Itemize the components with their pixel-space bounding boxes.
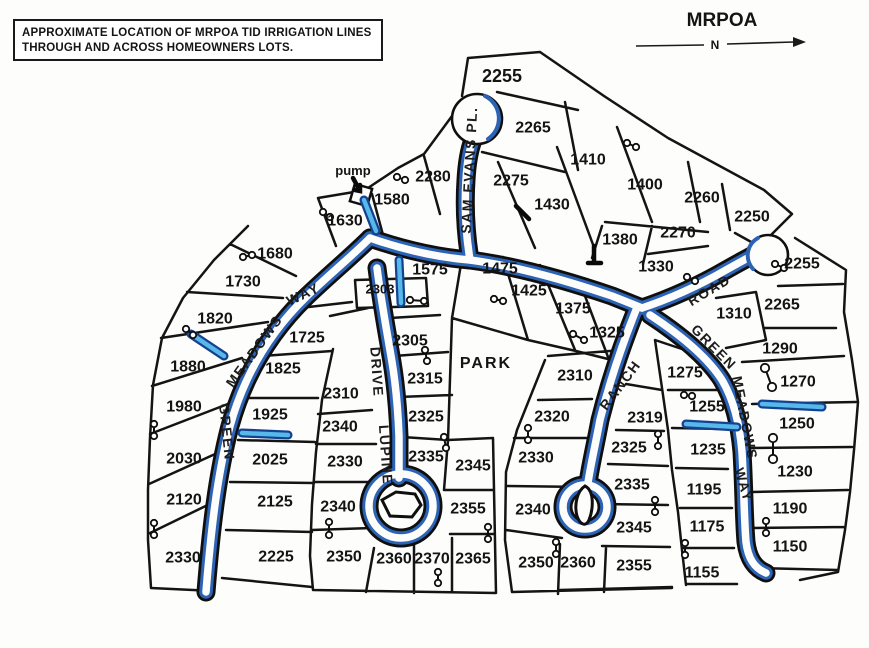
lot-label-2320: 2320: [534, 409, 570, 426]
lot-label-2330: 2330: [165, 550, 201, 567]
valve-symbol: [633, 144, 639, 150]
lot-label-1310: 1310: [716, 306, 752, 323]
lot-label-2319: 2319: [627, 410, 663, 427]
street-label: DRIVE: [367, 346, 386, 397]
valve-symbol: [772, 261, 778, 267]
lot-label-1410: 1410: [570, 152, 606, 169]
lot-label-1375: 1375: [555, 301, 591, 318]
valve-symbol: [500, 298, 506, 304]
lot-label-1725: 1725: [289, 330, 325, 347]
lot-label-1825: 1825: [265, 361, 301, 378]
lot-label-2255: 2255: [784, 256, 820, 273]
valve-symbol: [763, 518, 769, 524]
valve-symbol: [553, 539, 559, 545]
pump-arrow: [353, 178, 360, 191]
valve-symbol: [761, 364, 769, 372]
valve-symbol: [655, 443, 661, 449]
valve-symbol: [769, 434, 777, 442]
lot-label-2365: 2365: [455, 551, 491, 568]
lot-label-1195: 1195: [687, 482, 722, 499]
lot-label-2325: 2325: [408, 409, 444, 426]
lot-label-2025: 2025: [252, 452, 288, 469]
lot-label-1430: 1430: [534, 197, 570, 214]
lot-label-2340: 2340: [322, 419, 358, 436]
valve-symbol: [151, 421, 157, 427]
lot-label-2330: 2330: [327, 454, 363, 471]
valve-symbol: [240, 254, 246, 260]
lot-label-2315: 2315: [407, 371, 443, 388]
lot-label-1275: 1275: [667, 365, 703, 382]
lot-label-1175: 1175: [690, 519, 725, 536]
lot-label-1630: 1630: [327, 213, 363, 230]
lot-label-2270: 2270: [660, 225, 696, 242]
lot-label-1580: 1580: [374, 192, 410, 209]
valve-symbol: [769, 455, 777, 463]
lot-label-1190: 1190: [773, 501, 808, 518]
lot-label-2310: 2310: [557, 368, 593, 385]
lot-label-2350: 2350: [518, 555, 554, 572]
valve-symbol: [768, 383, 776, 391]
lot-label-2335: 2335: [408, 449, 444, 466]
north-arrow: N: [636, 37, 806, 52]
valve-symbol: [652, 497, 658, 503]
valve-symbol: [421, 298, 427, 304]
lot-label-2250: 2250: [734, 209, 770, 226]
lot-label-1980: 1980: [166, 399, 202, 416]
lot-label-2120: 2120: [166, 492, 202, 509]
mrpoa-irrigation-map-page: 2280158016302255226522751430141014002260…: [0, 0, 869, 648]
valve-symbol: [485, 524, 491, 530]
valve-symbol: [435, 580, 441, 586]
ranch-loop-island: [576, 486, 592, 524]
valve-symbol: [485, 536, 491, 542]
north-arrow-head: [793, 37, 806, 47]
lot-label-2303: 2303: [366, 282, 395, 297]
lot-label-1475: 1475: [482, 261, 518, 278]
valve-symbol: [394, 174, 400, 180]
note-box: APPROXIMATE LOCATION OF MRPOA TID IRRIGA…: [14, 20, 382, 60]
lot-label-2305: 2305: [392, 333, 428, 350]
lot-label-2350: 2350: [326, 549, 362, 566]
valve-symbol: [681, 392, 687, 398]
valve-symbol: [320, 209, 326, 215]
lot-label-2275: 2275: [493, 173, 529, 190]
lot-label-2370: 2370: [414, 551, 450, 568]
valve-symbol: [525, 425, 531, 431]
valve-symbol: [682, 552, 688, 558]
lot-label-2265: 2265: [764, 297, 800, 314]
valve-symbol: [190, 332, 196, 338]
valve-symbol: [151, 520, 157, 526]
valve-symbol: [692, 278, 698, 284]
lot-label-2340: 2340: [320, 499, 356, 516]
lot-label-1575: 1575: [412, 262, 448, 279]
valve-symbol: [151, 433, 157, 439]
lot-label-1250: 1250: [779, 416, 815, 433]
lot-label-2255: 2255: [482, 66, 522, 86]
valve-symbol: [491, 296, 497, 302]
lot-label-1425: 1425: [511, 283, 547, 300]
map-title: MRPOA: [687, 10, 758, 31]
valve-symbol: [402, 177, 408, 183]
lot-label-1820: 1820: [197, 311, 233, 328]
lot-label-2345: 2345: [616, 520, 652, 537]
valve-symbol: [441, 434, 447, 440]
lot-label-2335: 2335: [614, 477, 650, 494]
valve-symbol: [183, 326, 189, 332]
lot-label-1730: 1730: [225, 274, 261, 291]
valve-symbol: [655, 431, 661, 437]
lot-label-2260: 2260: [684, 190, 720, 207]
lot-label-1290: 1290: [762, 341, 798, 358]
valve-symbol: [326, 519, 332, 525]
lot-label-2325: 2325: [611, 440, 647, 457]
valve-symbol: [652, 509, 658, 515]
valve-symbol: [763, 530, 769, 536]
valve-symbol: [249, 252, 255, 258]
valve-symbol: [407, 297, 413, 303]
irrigation-map: 2280158016302255226522751430141014002260…: [0, 0, 869, 648]
lot-label-2030: 2030: [166, 451, 202, 468]
valve-symbol: [682, 540, 688, 546]
valve-symbol: [435, 569, 441, 575]
irrigation-lateral-core: [762, 404, 822, 407]
valve-symbol: [570, 331, 576, 337]
lot-label-2345: 2345: [455, 458, 491, 475]
lot-label-2265: 2265: [515, 120, 551, 137]
irrigation-lateral-core: [686, 424, 737, 427]
lupine-loop-island: [382, 492, 421, 517]
lot-label-2225: 2225: [258, 549, 294, 566]
valve-symbol: [525, 437, 531, 443]
lot-label-1155: 1155: [685, 565, 720, 582]
lot-label-1255: 1255: [689, 399, 725, 416]
lot-label-2360: 2360: [376, 551, 412, 568]
valve-symbol: [581, 337, 587, 343]
lot-label-1380: 1380: [602, 232, 638, 249]
lot-label-2125: 2125: [257, 494, 293, 511]
lot-label-1880: 1880: [170, 359, 206, 376]
valve-symbol: [151, 532, 157, 538]
irrigation-lateral-core: [242, 433, 288, 435]
lot-label-2330: 2330: [518, 450, 554, 467]
lot-label-1330: 1330: [638, 259, 674, 276]
valve-symbol: [326, 532, 332, 538]
north-label: N: [711, 38, 720, 52]
valve-symbol: [684, 274, 690, 280]
lot-label-1325: 1325: [589, 325, 625, 342]
park-label: PARK: [460, 355, 512, 372]
pump-label: pump: [335, 163, 370, 178]
lot-label-2310: 2310: [323, 386, 359, 403]
note-box-frame: [14, 20, 382, 60]
valve-symbol: [424, 358, 430, 364]
lot-label-1150: 1150: [773, 539, 808, 556]
valve-symbol: [624, 140, 630, 146]
lot-label-2355: 2355: [450, 501, 486, 518]
irrigation-lateral-core: [399, 260, 401, 303]
lot-label-2355: 2355: [616, 558, 652, 575]
lot-label-1230: 1230: [777, 464, 813, 481]
lot-label-1925: 1925: [252, 407, 288, 424]
note-line-1: APPROXIMATE LOCATION OF MRPOA TID IRRIGA…: [22, 27, 372, 39]
lot-label-1270: 1270: [780, 374, 816, 391]
note-line-2: THROUGH AND ACROSS HOMEOWNERS LOTS.: [22, 42, 293, 54]
lot-label-1400: 1400: [627, 177, 663, 194]
lot-label-1235: 1235: [690, 442, 726, 459]
lot-label-1680: 1680: [257, 246, 293, 263]
lot-label-2360: 2360: [560, 555, 596, 572]
lot-label-2340: 2340: [515, 502, 551, 519]
lot-label-2280: 2280: [415, 169, 451, 186]
